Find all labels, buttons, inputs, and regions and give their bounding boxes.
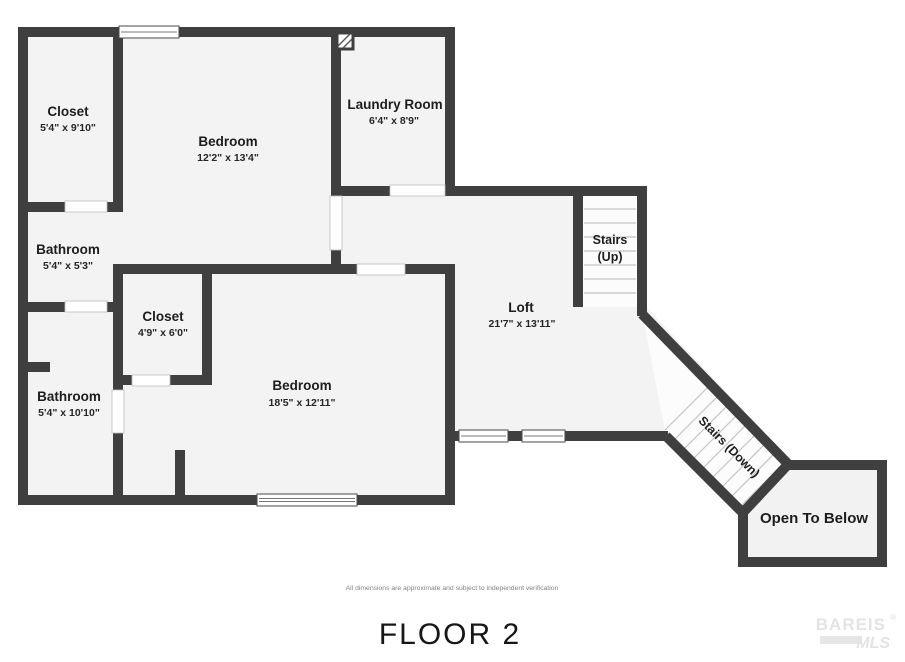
wall [445, 186, 647, 196]
door-opening [132, 375, 170, 386]
wall [331, 250, 341, 274]
window-symbol [257, 494, 357, 506]
door-opening [390, 185, 445, 196]
room-label-bathroom-upper: Bathroom [36, 242, 100, 257]
door-opening [112, 390, 124, 433]
room-label-laundry: Laundry Room [347, 97, 442, 112]
stairs-up-label-line1: Stairs [593, 233, 628, 247]
door-opening [330, 196, 342, 250]
wall [573, 196, 583, 307]
disclaimer-text: All dimensions are approximate and subje… [346, 585, 559, 592]
wall [18, 27, 28, 505]
stairs-up-label-line2: (Up) [598, 250, 623, 264]
room-dims-bedroom-upper: 12'2" x 13'4" [197, 152, 259, 164]
wall [18, 27, 455, 37]
wall [331, 37, 341, 196]
wall [202, 264, 212, 385]
room-dims-laundry: 6'4" x 8'9" [369, 115, 419, 127]
room-label-closet-lower: Closet [142, 309, 184, 324]
room-label-bathroom-lower: Bathroom [37, 389, 101, 404]
room-dims-loft: 21'7" x 13'11" [489, 318, 556, 330]
wall [445, 27, 455, 196]
floor-title: FLOOR 2 [379, 618, 521, 651]
watermark-logo: BAREIS ® MLS [816, 613, 896, 652]
room-label-bedroom-upper: Bedroom [198, 134, 257, 149]
watermark-registered: ® [890, 613, 896, 622]
watermark-brand: BAREIS [816, 615, 886, 634]
open-to-below-label: Open To Below [760, 510, 868, 527]
door-opening [65, 201, 107, 212]
room-label-loft: Loft [508, 300, 534, 315]
wall [18, 495, 257, 505]
wall [113, 264, 357, 274]
room-dims-bedroom-lower: 18'5" x 12'11" [269, 397, 336, 409]
watermark-sub: MLS [856, 635, 890, 652]
wall [175, 450, 185, 505]
wall [357, 495, 455, 505]
door-opening [357, 264, 405, 275]
chimney-block [337, 33, 353, 49]
wall [445, 264, 455, 505]
wall [113, 264, 123, 390]
door-opening [65, 301, 107, 312]
wall [113, 433, 123, 505]
window-symbol [459, 430, 508, 442]
room-dims-bathroom-upper: 5'4" x 5'3" [43, 260, 93, 272]
room-dims-closet-upper: 5'4" x 9'10" [40, 122, 96, 134]
room-dims-closet-lower: 4'9" x 6'0" [138, 327, 188, 339]
room-label-closet-upper: Closet [47, 104, 89, 119]
room-label-bedroom-lower: Bedroom [272, 378, 331, 393]
window-symbol [522, 430, 565, 442]
wall [637, 186, 647, 316]
window-symbol [119, 26, 179, 38]
room-dims-bathroom-lower: 5'4" x 10'10" [38, 407, 100, 419]
floor-plan: Closet 5'4" x 9'10" Bedroom 12'2" x 13'4… [0, 0, 905, 662]
wall [113, 37, 123, 212]
